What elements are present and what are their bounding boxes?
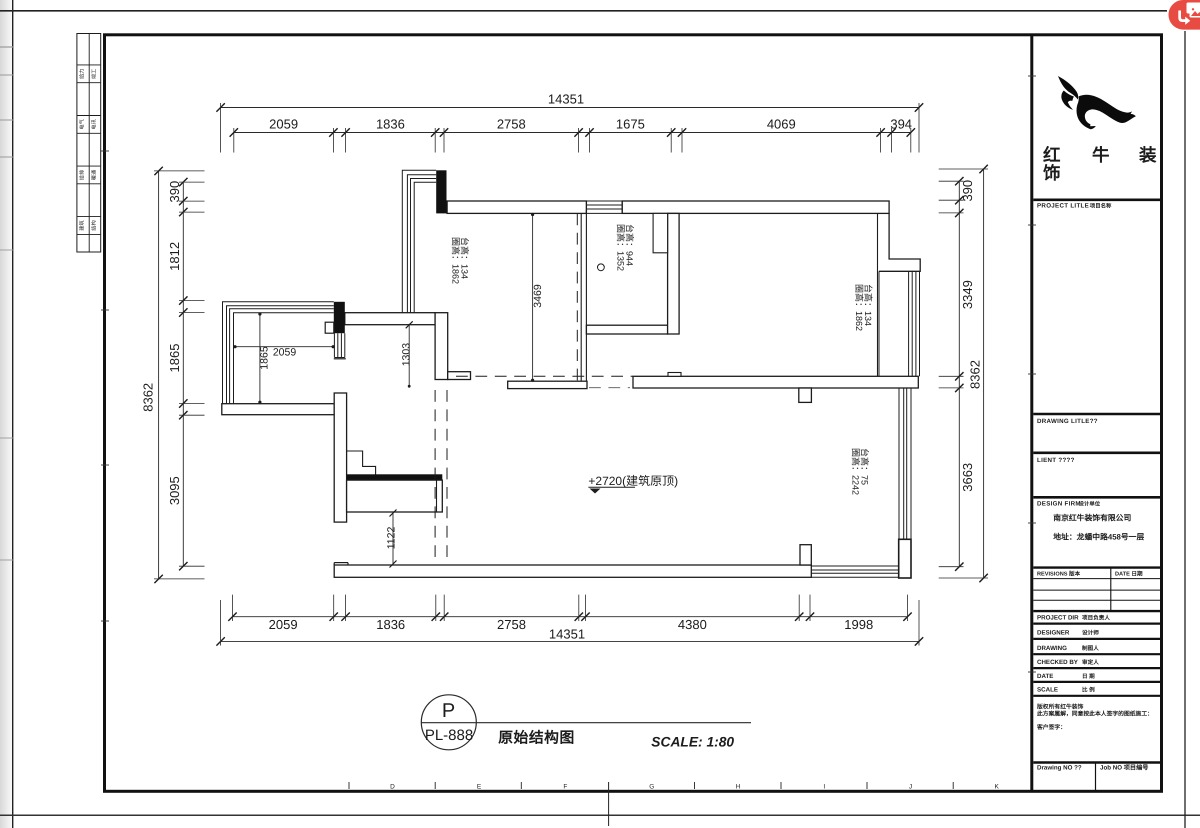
svg-text:地址：龙蟠中路458号一层: 地址：龙蟠中路458号一层 [1053,532,1144,541]
svg-text:2758: 2758 [497,117,526,132]
svg-text:DRAWING: DRAWING [1037,645,1067,652]
svg-text:1303: 1303 [400,343,412,367]
svg-text:2059: 2059 [269,617,298,632]
svg-text:制图人: 制图人 [1082,645,1099,652]
svg-text:2059: 2059 [269,117,298,132]
svg-text:F: F [563,784,567,791]
svg-text:PROJECT LITLE: PROJECT LITLE [1037,203,1089,210]
svg-text:3349: 3349 [960,280,975,309]
svg-text:电讯: 电讯 [91,118,98,129]
svg-text:PROJECT DIR: PROJECT DIR [1037,614,1079,621]
svg-text:南京红牛装饰有限公司: 南京红牛装饰有限公司 [1053,514,1131,523]
svg-text:1122: 1122 [385,527,397,550]
svg-text:1812: 1812 [167,242,182,271]
svg-text:1865: 1865 [167,344,182,373]
svg-text:Drawing NO ??: Drawing NO ?? [1037,764,1082,771]
svg-text:给力: 给力 [79,69,86,79]
svg-text:圈高：1862: 圈高：1862 [451,237,461,284]
svg-text:1836: 1836 [376,117,405,132]
svg-text:3663: 3663 [960,463,975,492]
svg-text:竣工: 竣工 [91,69,98,79]
svg-text:D: D [390,784,395,791]
svg-text:饰: 饰 [1043,163,1061,183]
svg-text:日 期: 日 期 [1082,673,1095,680]
svg-text:PL-888: PL-888 [425,727,473,744]
svg-text:DATE 日期: DATE 日期 [1115,570,1143,577]
svg-text:牛: 牛 [1092,145,1110,165]
svg-text:DESIGN FIRM: DESIGN FIRM [1037,501,1081,508]
svg-text:设计师: 设计师 [1082,630,1099,637]
svg-text:390: 390 [167,181,182,203]
svg-text:CHECKED BY: CHECKED BY [1037,659,1079,666]
svg-text:此方案属解，同意按此本人签字的图纸施工：: 此方案属解，同意按此本人签字的图纸施工： [1037,709,1153,717]
svg-text:14351: 14351 [548,92,584,107]
svg-text:圈高：1862: 圈高：1862 [854,284,864,331]
svg-text:H: H [736,784,741,791]
svg-text:P: P [442,700,455,722]
svg-text:1836: 1836 [376,617,405,632]
svg-text:设计单位: 设计单位 [1079,501,1101,508]
svg-text:结构: 结构 [91,220,98,230]
svg-text:DRAWING LITLE??: DRAWING LITLE?? [1037,418,1098,425]
svg-text:电气: 电气 [79,119,86,129]
svg-text:给排: 给排 [79,170,86,180]
svg-text:暖通: 暖通 [91,169,98,180]
svg-text:比 例: 比 例 [1082,687,1095,694]
svg-text:I: I [823,784,825,791]
svg-text:圈高：2242: 圈高：2242 [851,448,861,495]
svg-text:圈高：1352: 圈高：1352 [616,224,626,271]
svg-text:Job NO 项目编号: Job NO 项目编号 [1100,763,1148,771]
svg-text:建筑: 建筑 [79,220,86,231]
svg-text:2758: 2758 [497,617,526,632]
svg-text:1865: 1865 [259,346,271,370]
svg-text:REVISIONS 版本: REVISIONS 版本 [1037,570,1081,577]
svg-text:项目名称: 项目名称 [1090,203,1112,210]
svg-text:SCALE: SCALE [1037,687,1058,694]
svg-text:E: E [477,784,482,791]
svg-text:SCALE: 1:80: SCALE: 1:80 [651,735,734,750]
svg-text:DATE: DATE [1037,673,1053,680]
svg-text:4380: 4380 [678,617,707,632]
svg-text:14351: 14351 [549,627,585,642]
svg-text:4069: 4069 [767,117,796,132]
svg-text:项目负责人: 项目负责人 [1082,614,1110,621]
svg-text:LIENT ????: LIENT ???? [1037,457,1075,464]
svg-text:装: 装 [1138,145,1157,165]
svg-text:K: K [995,784,1000,791]
svg-text:原始结构图: 原始结构图 [498,730,575,747]
svg-text:394: 394 [890,117,912,132]
svg-text:+2720(建筑原顶): +2720(建筑原顶) [588,474,678,488]
svg-text:3469: 3469 [532,284,544,308]
svg-text:J: J [909,784,912,791]
svg-text:3095: 3095 [167,476,182,505]
svg-text:1998: 1998 [844,617,873,632]
svg-text:客户签字：: 客户签字： [1036,723,1066,731]
svg-text:8362: 8362 [968,360,983,389]
svg-text:390: 390 [960,180,975,202]
svg-text:DESIGNER: DESIGNER [1037,630,1070,637]
svg-text:审定人: 审定人 [1082,659,1099,666]
svg-text:2059: 2059 [273,347,297,359]
svg-text:G: G [649,784,654,791]
svg-text:版权所有红牛装饰: 版权所有红牛装饰 [1037,702,1084,710]
svg-text:8362: 8362 [141,383,156,412]
svg-text:1675: 1675 [616,117,645,132]
svg-text:红: 红 [1043,145,1061,165]
